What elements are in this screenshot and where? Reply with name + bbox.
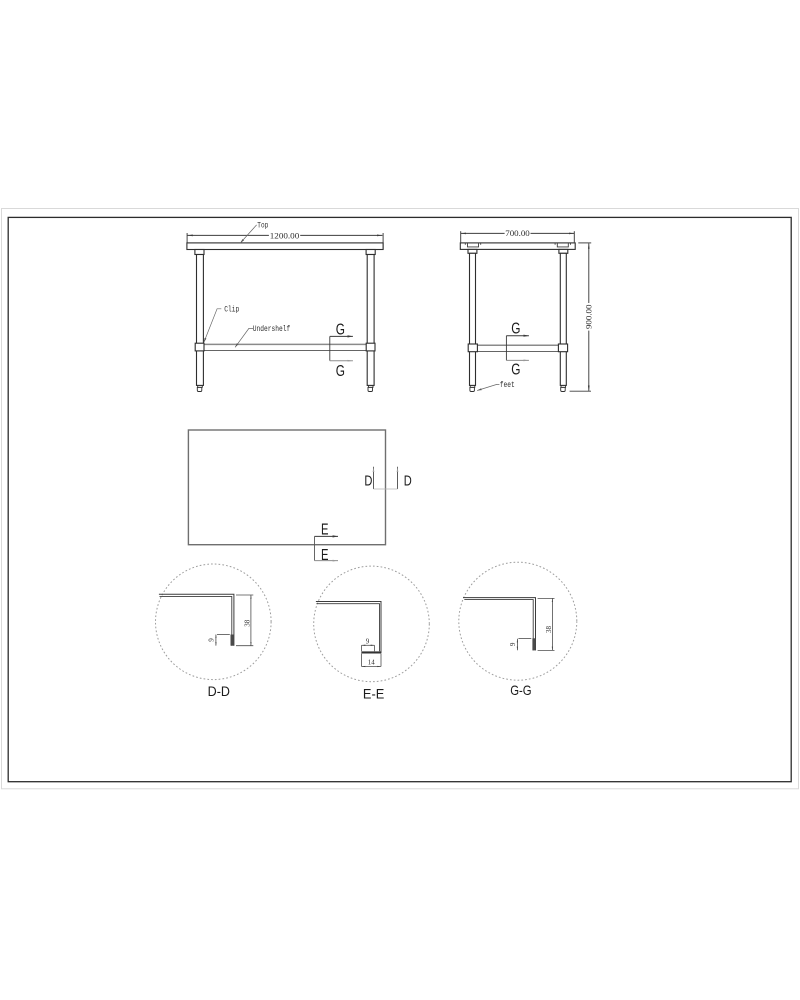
svg-text:38: 38	[243, 619, 251, 627]
svg-text:900.00: 900.00	[584, 305, 593, 330]
svg-text:Undershelf: Undershelf	[253, 325, 291, 334]
svg-text:9: 9	[509, 642, 517, 646]
svg-text:Clip: Clip	[224, 306, 239, 315]
svg-text:1200.00: 1200.00	[270, 231, 300, 240]
svg-text:G: G	[511, 321, 520, 338]
svg-text:D-D: D-D	[208, 683, 230, 699]
svg-text:Top: Top	[257, 222, 268, 231]
svg-text:E: E	[321, 547, 329, 564]
svg-text:D: D	[404, 473, 412, 489]
svg-text:700.00: 700.00	[505, 229, 530, 238]
svg-text:E-E: E-E	[363, 685, 384, 701]
svg-text:G: G	[511, 362, 520, 379]
svg-text:G: G	[336, 321, 345, 338]
svg-text:D: D	[364, 473, 372, 489]
svg-text:feet: feet	[500, 381, 515, 390]
svg-text:9: 9	[366, 638, 370, 646]
svg-text:38: 38	[545, 626, 553, 634]
svg-text:9: 9	[208, 638, 216, 642]
svg-text:G: G	[336, 363, 345, 380]
svg-text:G-G: G-G	[510, 682, 531, 698]
svg-text:14: 14	[368, 659, 376, 667]
